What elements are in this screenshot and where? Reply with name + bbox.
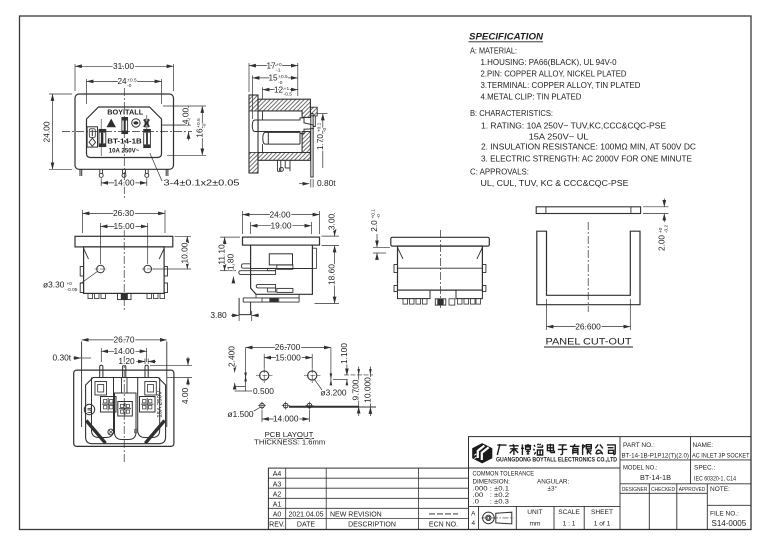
svg-text:AC INLET 3P SOCKET: AC INLET 3P SOCKET — [692, 453, 750, 460]
svg-text:-0: -0 — [202, 123, 208, 128]
svg-text:+1: +1 — [284, 86, 290, 92]
svg-text:IEC 60320-1, C14: IEC 60320-1, C14 — [694, 475, 737, 482]
svg-text:2021.04.05: 2021.04.05 — [288, 511, 323, 518]
svg-text:-0.2: -0.2 — [664, 225, 670, 234]
svg-text:18.60: 18.60 — [327, 264, 337, 285]
svg-text:UL: UL — [88, 405, 94, 413]
svg-text:17: 17 — [266, 61, 276, 70]
svg-text:ø3.30: ø3.30 — [43, 280, 65, 290]
svg-text:26.700: 26.700 — [275, 342, 301, 352]
svg-text:SCALE: SCALE — [558, 509, 580, 516]
svg-text:A3: A3 — [273, 481, 282, 488]
svg-text:9.700: 9.700 — [351, 379, 361, 400]
svg-text:DESCRIPTION: DESCRIPTION — [348, 521, 396, 528]
svg-text:26.70: 26.70 — [114, 335, 135, 345]
svg-text:ANGULAR:: ANGULAR: — [537, 478, 569, 485]
svg-text:mm: mm — [530, 520, 541, 527]
svg-text:THICKNESS: 1.6mm: THICKNESS: 1.6mm — [254, 438, 325, 447]
svg-text:4.00: 4.00 — [180, 388, 190, 405]
svg-text:-0: -0 — [376, 214, 382, 219]
svg-text:24: 24 — [117, 77, 127, 86]
svg-text:-0: -0 — [322, 128, 328, 133]
svg-text:PANEL CUT-OUT: PANEL CUT-OUT — [546, 337, 633, 347]
svg-text:0.80t: 0.80t — [317, 178, 336, 188]
svg-text:2.00: 2.00 — [657, 235, 666, 251]
svg-text:BT-14-1B: BT-14-1B — [640, 473, 671, 482]
svg-text:3. ELECTRIC STRENGTH: AC 2: 3. ELECTRIC STRENGTH: AC 2000V FOR ONE M… — [481, 155, 692, 164]
svg-text:3.00: 3.00 — [327, 214, 337, 231]
svg-text:DATE: DATE — [297, 521, 315, 528]
svg-text:UL, CUL, TUV, KC & CCC&CQ: UL, CUL, TUV, KC & CCC&CQC-PSE — [481, 179, 629, 188]
svg-text:BT-14-1B: BT-14-1B — [107, 137, 142, 146]
svg-text:FILE NO.:: FILE NO.: — [710, 511, 739, 518]
svg-text:DIMENSION:: DIMENSION: — [473, 478, 511, 485]
svg-text:SHEET: SHEET — [591, 509, 613, 516]
svg-text:3.TERMINAL: COPPER ALLOY, T: 3.TERMINAL: COPPER ALLOY, TIN PLATED — [481, 81, 641, 90]
svg-text:BOYITALL: BOYITALL — [107, 107, 143, 116]
svg-text:CHECKED: CHECKED — [651, 487, 675, 493]
svg-text:2.0: 2.0 — [370, 220, 379, 232]
svg-text:14.00: 14.00 — [114, 346, 135, 356]
svg-text:4.00: 4.00 — [181, 108, 191, 125]
svg-text:-0: -0 — [127, 83, 132, 89]
svg-text:+0.1: +0.1 — [316, 122, 322, 132]
svg-text:+0.5: +0.5 — [196, 118, 202, 128]
svg-text:A4: A4 — [273, 471, 282, 478]
svg-text:1.20: 1.20 — [118, 356, 135, 366]
svg-text:3.80: 3.80 — [210, 310, 227, 320]
svg-text:15: 15 — [268, 74, 278, 83]
svg-text:MODEL NO.:: MODEL NO.: — [623, 465, 658, 472]
svg-text:-0.05: -0.05 — [67, 287, 78, 293]
svg-text:14.00: 14.00 — [114, 178, 135, 188]
svg-text:14.000: 14.000 — [273, 414, 299, 424]
svg-text:ø3.200: ø3.200 — [321, 388, 347, 398]
svg-text:BT-14-1B-P1P12(T)(2.0): BT-14-1B-P1P12(T)(2.0) — [622, 453, 690, 460]
svg-text:NEW REVISION: NEW REVISION — [330, 511, 382, 518]
svg-text:COMMON TOLERANCE: COMMON TOLERANCE — [473, 471, 535, 478]
svg-text:26.30: 26.30 — [113, 208, 134, 218]
svg-text:+0.5: +0.5 — [127, 78, 137, 84]
svg-text:0.500: 0.500 — [253, 386, 274, 396]
svg-text:1 of 1: 1 of 1 — [594, 520, 611, 527]
svg-text:UNIT: UNIT — [527, 509, 542, 516]
svg-text:REV.: REV. — [269, 521, 285, 528]
svg-text:26.600: 26.600 — [575, 321, 601, 331]
svg-text:15.00: 15.00 — [114, 221, 135, 231]
svg-text:1.70: 1.70 — [316, 134, 325, 150]
svg-text:±3°: ±3° — [548, 485, 558, 493]
svg-text:2. INSULATION RESISTANCE: 1: 2. INSULATION RESISTANCE: 100MΩ MIN, AT … — [481, 142, 696, 151]
svg-text:+0.5: +0.5 — [278, 74, 288, 80]
svg-text:NAME:: NAME: — [693, 442, 714, 449]
svg-text:A0: A0 — [273, 511, 282, 518]
svg-text:15.000: 15.000 — [275, 352, 301, 362]
svg-text:31.00: 31.00 — [113, 61, 134, 71]
svg-text:+0.1: +0.1 — [371, 209, 377, 219]
svg-text:16: 16 — [195, 128, 204, 138]
svg-text:-0.5: -0.5 — [284, 92, 293, 98]
svg-text:2.PIN: COPPER ALLOY, NICKEL: 2.PIN: COPPER ALLOY, NICKEL PLATED — [481, 69, 627, 78]
svg-text:1.HOUSING: PA66(BLACK), UL: 1.HOUSING: PA66(BLACK), UL 94V-0 — [481, 58, 618, 67]
svg-text:24.00: 24.00 — [42, 121, 52, 142]
svg-text:24.00: 24.00 — [270, 209, 291, 219]
svg-text:SPECIFICATION: SPECIFICATION — [469, 32, 544, 43]
svg-text:S14-0005: S14-0005 — [712, 519, 747, 528]
svg-text:15A 250V~ UL: 15A 250V~ UL — [529, 132, 590, 141]
svg-text:1 : 1: 1 : 1 — [563, 520, 576, 527]
svg-text:m: m — [134, 429, 140, 434]
svg-text:1. RATING: 10A 250V~ TUV,K: 1. RATING: 10A 250V~ TUV,KC,CCC&CQC-PSE — [481, 121, 666, 130]
svg-text:SPEC.:: SPEC.: — [694, 465, 716, 472]
svg-text:ø1.500: ø1.500 — [228, 409, 254, 419]
svg-text:APPROVED: APPROVED — [679, 487, 706, 493]
svg-text:A: A — [471, 511, 476, 518]
svg-text:NOTE:: NOTE: — [710, 486, 730, 493]
svg-text:2.400: 2.400 — [226, 346, 236, 367]
svg-text:C: APPROVALS:: C: APPROVALS: — [470, 168, 529, 177]
svg-text:3-4±0.1x2±0.05: 3-4±0.1x2±0.05 — [164, 178, 240, 188]
svg-text:+0: +0 — [67, 281, 73, 287]
svg-text:GUANGDONG BOYTALL ELECTRONICS: GUANGDONG BOYTALL ELECTRONICS CO.,LTD — [496, 457, 617, 464]
svg-text:15A 250V~: 15A 250V~ — [157, 387, 164, 418]
svg-text:-1: -1 — [276, 68, 281, 74]
svg-text:0.30t: 0.30t — [53, 353, 72, 363]
svg-text:B: CHARACTERISTICS:: B: CHARACTERISTICS: — [470, 109, 553, 118]
svg-text:A1: A1 — [273, 501, 282, 508]
svg-text:1.80: 1.80 — [225, 254, 235, 271]
svg-text:DESIGNER: DESIGNER — [622, 487, 648, 493]
svg-text:10.000: 10.000 — [362, 377, 372, 403]
svg-text:1.100: 1.100 — [339, 343, 349, 364]
svg-text:ECN NO.: ECN NO. — [429, 521, 458, 528]
svg-text:.0 : ±0.3: .0 : ±0.3 — [473, 499, 510, 506]
svg-text:A: MATERIAL:: A: MATERIAL: — [470, 47, 517, 56]
svg-text:+0: +0 — [658, 227, 664, 233]
svg-text:12: 12 — [274, 85, 284, 94]
svg-text:4.METAL CLIP: TIN PLATED: 4.METAL CLIP: TIN PLATED — [481, 92, 582, 101]
svg-text:+0: +0 — [276, 62, 282, 68]
svg-text:19.00: 19.00 — [271, 220, 292, 230]
svg-text:PART NO.:: PART NO.: — [623, 442, 655, 449]
svg-text:A2: A2 — [273, 491, 282, 498]
svg-text:4: 4 — [472, 520, 476, 527]
svg-text:10.00: 10.00 — [180, 242, 190, 263]
